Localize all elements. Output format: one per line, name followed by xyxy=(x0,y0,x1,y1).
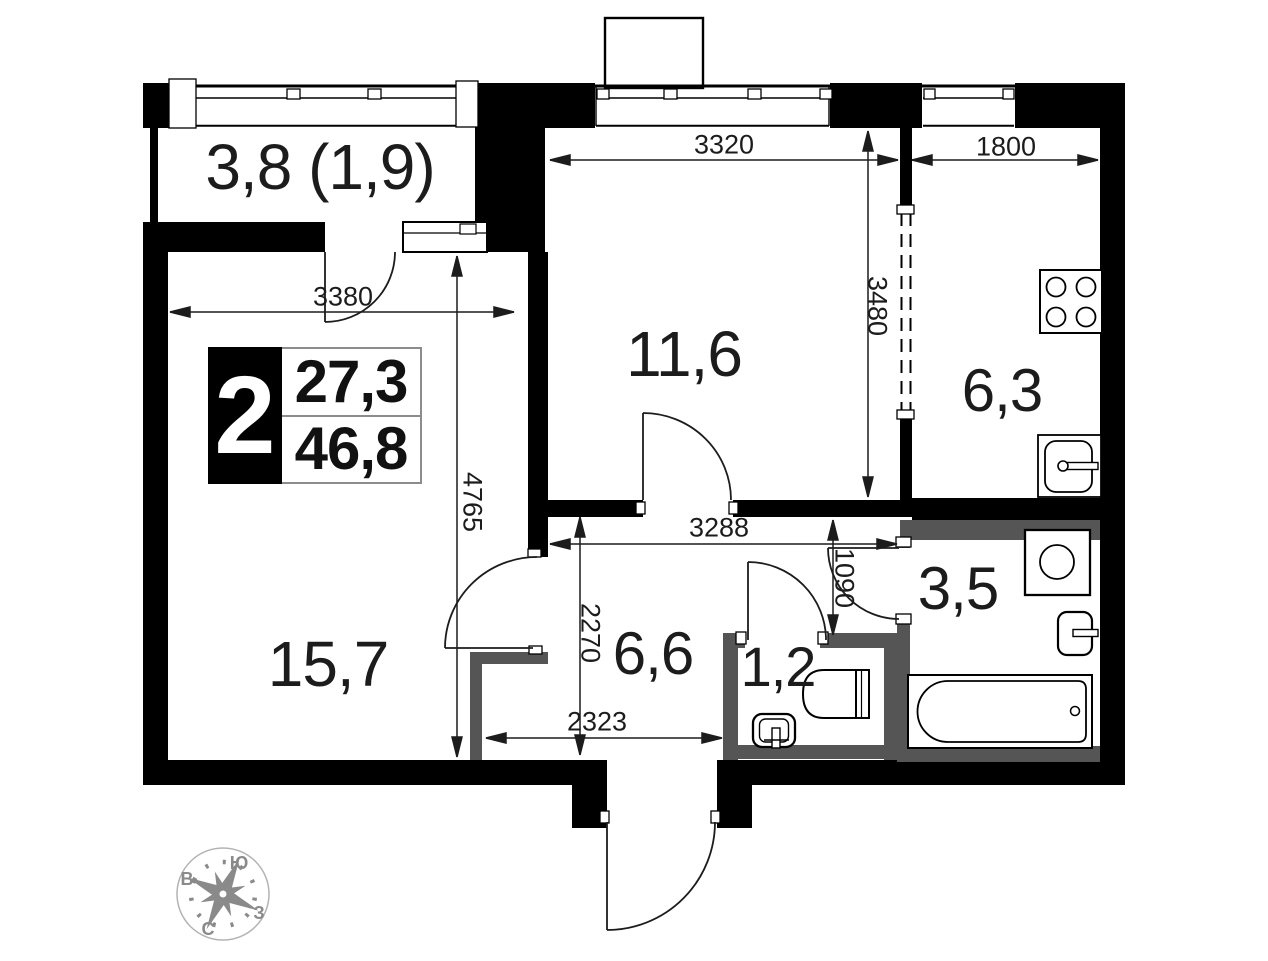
window-mullion xyxy=(287,89,300,99)
dim-arrow xyxy=(878,155,898,165)
dim-arrow xyxy=(575,517,585,537)
window-mullion xyxy=(1003,89,1014,99)
door-swing-arc xyxy=(643,413,731,500)
wall xyxy=(143,222,168,785)
dim-arrow xyxy=(1078,155,1098,165)
dim-arrow xyxy=(702,733,722,743)
vent-shaft-outline xyxy=(605,18,703,88)
wc-wall xyxy=(723,745,901,759)
jamb xyxy=(600,811,609,823)
window-mullion xyxy=(460,224,476,234)
room-label-bathroom: 3,5 xyxy=(918,559,998,619)
floor-plan: Ю В С З 3,8 (1,9) 11,6 6,3 15,7 6,6 1,2 … xyxy=(0,0,1268,961)
dim-arrow xyxy=(452,737,462,757)
door-swing-arc xyxy=(607,822,715,930)
washing-machine-icon xyxy=(1025,530,1090,595)
wc-wall xyxy=(723,633,738,760)
wall xyxy=(830,83,922,128)
stove-icon xyxy=(1040,270,1102,333)
window-mullion xyxy=(748,89,761,99)
jamb xyxy=(636,502,645,514)
compass-east-label: В xyxy=(181,869,194,889)
jamb xyxy=(528,549,541,557)
jamb xyxy=(711,811,720,823)
bathtub-icon xyxy=(908,675,1092,748)
door-swing-arc xyxy=(445,557,537,648)
hall-partition xyxy=(470,652,482,760)
room-label-living: 15,7 xyxy=(268,632,389,696)
dim-label-living-depth: 4765 xyxy=(459,472,486,532)
window-end-cap xyxy=(169,79,196,128)
jamb xyxy=(897,410,914,419)
window-end-cap xyxy=(456,81,478,127)
wall xyxy=(900,128,912,213)
room-label-balcony: 3,8 (1,9) xyxy=(205,135,434,199)
compass-south-label: Ю xyxy=(230,853,249,873)
entrance-step xyxy=(717,785,752,828)
dim-label-hallway-lower-width: 2323 xyxy=(567,709,627,736)
dim-arrow xyxy=(494,307,514,317)
dim-arrow xyxy=(486,733,506,743)
room-label-wc: 1,2 xyxy=(741,639,816,695)
wall xyxy=(900,413,912,500)
dim-label-bedroom-depth: 3480 xyxy=(864,276,891,336)
dim-arrow xyxy=(828,615,838,635)
balcony-window-unit xyxy=(403,222,487,252)
jamb xyxy=(897,205,914,214)
wc-sink-icon xyxy=(753,714,795,748)
area-values: 27,3 46,8 xyxy=(282,347,422,484)
wall xyxy=(912,498,1100,520)
wall xyxy=(528,252,548,557)
wall xyxy=(717,760,1125,785)
dim-label-kitchen-width: 1800 xyxy=(976,134,1036,161)
window-mullion xyxy=(664,89,677,99)
dim-arrow xyxy=(828,520,838,540)
dim-arrow xyxy=(550,155,570,165)
dim-label-hallway-width: 3288 xyxy=(689,515,749,542)
compass-west-label: З xyxy=(253,903,264,923)
dim-arrow xyxy=(550,539,570,549)
window-mullion xyxy=(924,89,935,99)
wc-wall xyxy=(820,633,897,648)
compass-rose: Ю В С З xyxy=(171,842,275,946)
floor-plan-drawing: Ю В С З xyxy=(0,0,1268,961)
wall xyxy=(1100,128,1125,785)
dim-arrow xyxy=(170,307,190,317)
dim-arrow xyxy=(912,155,932,165)
room-label-bedroom: 11,6 xyxy=(626,322,742,386)
dim-label-bath-entry: 1090 xyxy=(831,548,858,608)
wall xyxy=(143,760,607,785)
wall xyxy=(1015,83,1125,128)
dim-label-hallway-depth: 2270 xyxy=(577,603,604,663)
window-mullion xyxy=(597,89,609,99)
room-label-hallway: 6,6 xyxy=(613,624,693,684)
door-swing-arc xyxy=(748,562,826,640)
living-area-value: 27,3 xyxy=(282,349,420,417)
wall xyxy=(733,500,912,517)
dim-label-bedroom-width: 3320 xyxy=(694,132,754,159)
wc-wall xyxy=(884,648,897,760)
wall xyxy=(548,500,643,517)
dashed-partition xyxy=(902,213,911,411)
jamb xyxy=(896,537,911,547)
wall xyxy=(150,103,158,225)
total-area-value: 46,8 xyxy=(282,417,420,483)
dim-arrow xyxy=(863,131,873,151)
wall xyxy=(475,83,595,128)
compass-star-icon xyxy=(171,842,275,946)
dim-arrow xyxy=(452,256,462,276)
compass-north-label: С xyxy=(202,919,215,939)
dim-arrow xyxy=(863,477,873,497)
room-count-badge: 2 xyxy=(208,347,282,484)
window-mullion xyxy=(368,89,381,99)
apartment-info-badge: 2 27,3 46,8 xyxy=(208,347,422,484)
wall xyxy=(143,222,325,252)
dim-arrow xyxy=(575,735,585,755)
bathroom-sink-icon xyxy=(1058,612,1098,655)
room-label-kitchen: 6,3 xyxy=(962,361,1042,421)
dim-label-living-width: 3380 xyxy=(313,284,373,311)
window-mullion xyxy=(820,89,832,99)
kitchen-sink-icon xyxy=(1038,435,1101,497)
